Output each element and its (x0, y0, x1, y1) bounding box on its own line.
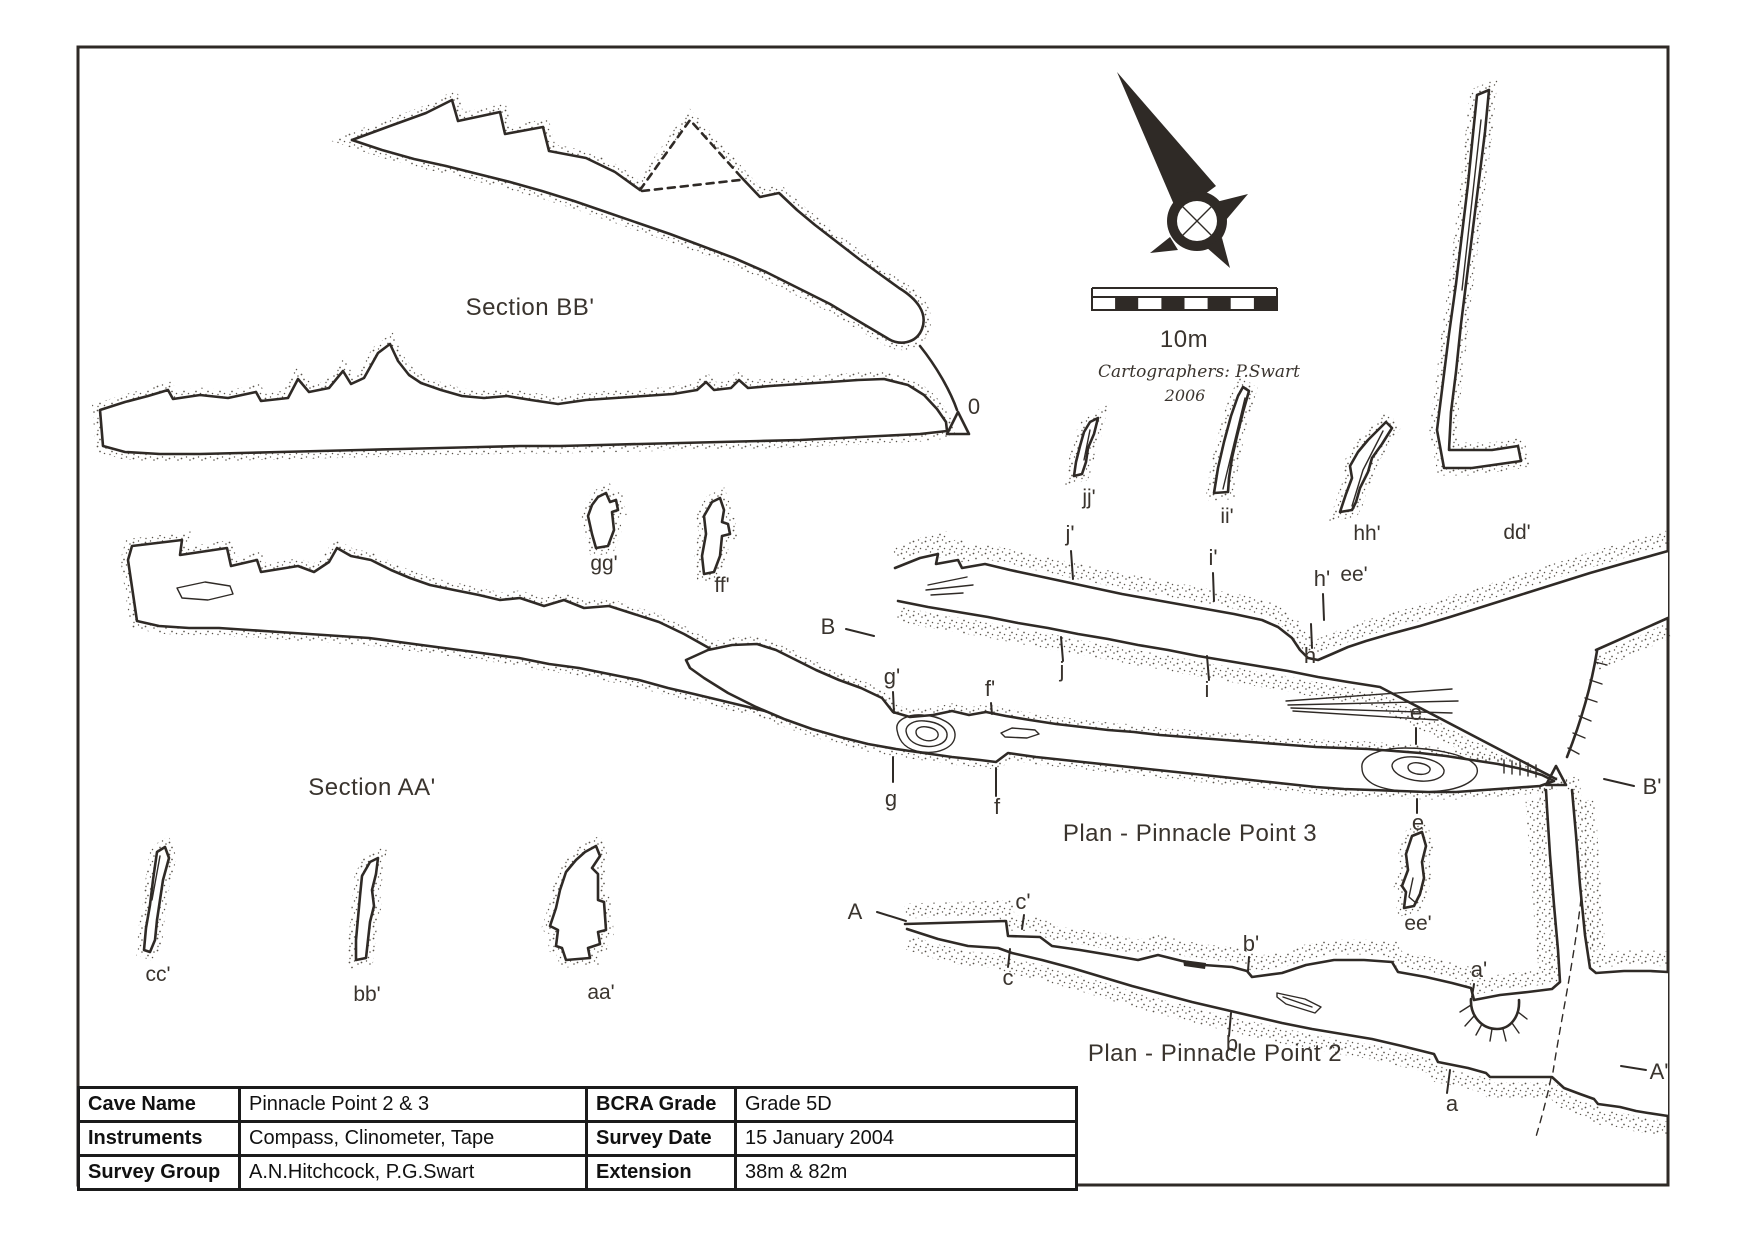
extension-value: 38m & 82m (736, 1156, 1077, 1190)
xsection-bb-label: bb' (353, 983, 380, 1006)
station-Bp: B' (1643, 774, 1662, 799)
xsection-ff-label: ff' (714, 574, 729, 597)
xsection-aa-label: aa' (587, 981, 614, 1004)
scale-label: 10m (1160, 326, 1208, 353)
survey-date-value: 15 January 2004 (736, 1122, 1077, 1156)
station-j: j (1059, 657, 1065, 682)
station-i: i (1205, 677, 1210, 702)
station-A: A (848, 899, 863, 924)
station-f: f (994, 794, 1001, 819)
station-b: b (1226, 1031, 1238, 1056)
xsection-ee-bottom-label: ee' (1404, 912, 1431, 935)
station-cp: c' (1015, 889, 1030, 914)
station-ap: a' (1471, 957, 1487, 982)
station-h: h (1304, 643, 1316, 668)
bcra-grade-label: BCRA Grade (587, 1088, 736, 1122)
xsection-dd-label: dd' (1503, 521, 1530, 544)
station-datum: 0 (968, 394, 980, 419)
cave-survey-sheet: Section BB' Section AA' Plan - Pinnacle … (0, 0, 1755, 1242)
station-fp: f' (985, 676, 995, 701)
station-B: B (821, 614, 836, 639)
xsection-gg-label: gg' (590, 552, 617, 575)
cave-name-label: Cave Name (79, 1088, 240, 1122)
station-e-lower: e (1412, 810, 1424, 835)
xsection-hh-label: hh' (1353, 522, 1380, 545)
extension-label: Extension (587, 1156, 736, 1190)
survey-group-label: Survey Group (79, 1156, 240, 1190)
station-a: a (1446, 1091, 1459, 1116)
station-gp: g' (884, 664, 900, 689)
instruments-label: Instruments (79, 1122, 240, 1156)
xsection-ii-label: ii' (1220, 505, 1233, 528)
plan-pp2-label: Plan - Pinnacle Point 2 (1088, 1040, 1342, 1067)
table-row: Instruments Compass, Clinometer, Tape Su… (79, 1122, 1077, 1156)
table-row: Survey Group A.N.Hitchcock, P.G.Swart Ex… (79, 1156, 1077, 1190)
station-Ap: A' (1650, 1059, 1669, 1084)
section-aa-label: Section AA' (308, 774, 436, 801)
xsection-ee-top-label: ee' (1340, 563, 1367, 586)
instruments-value: Compass, Clinometer, Tape (240, 1122, 587, 1156)
section-bb-label: Section BB' (466, 294, 595, 321)
station-e-upper: e (1410, 700, 1422, 725)
station-jp: j' (1064, 521, 1074, 546)
survey-map: Section BB' Section AA' Plan - Pinnacle … (0, 0, 1755, 1242)
survey-date-label: Survey Date (587, 1122, 736, 1156)
bcra-grade-value: Grade 5D (736, 1088, 1077, 1122)
title-block: Cave Name Pinnacle Point 2 & 3 BCRA Grad… (77, 1086, 1078, 1191)
table-row: Cave Name Pinnacle Point 2 & 3 BCRA Grad… (79, 1088, 1077, 1122)
station-bp: b' (1243, 931, 1259, 956)
station-g: g (885, 786, 897, 811)
station-hp: h' (1314, 566, 1330, 591)
station-c: c (1003, 965, 1014, 990)
cartographers-label: Cartographers: P.Swart (1098, 362, 1300, 382)
survey-group-value: A.N.Hitchcock, P.G.Swart (240, 1156, 587, 1190)
xsection-jj-label: jj' (1081, 486, 1095, 509)
cave-name-value: Pinnacle Point 2 & 3 (240, 1088, 587, 1122)
xsection-cc-label: cc' (145, 963, 170, 986)
year-label: 2006 (1164, 386, 1206, 405)
station-ip: i' (1208, 545, 1217, 570)
plan-pp3-label: Plan - Pinnacle Point 3 (1063, 820, 1317, 847)
